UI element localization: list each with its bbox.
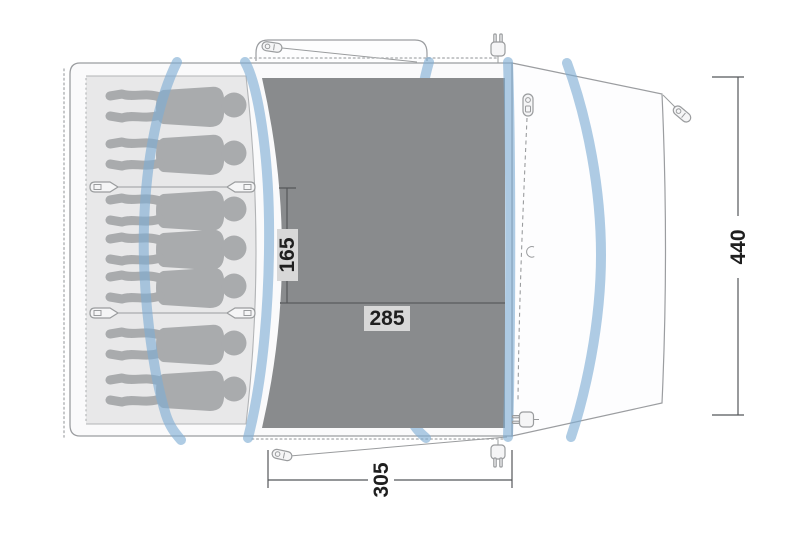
cable-entry-plug-bottom-icon (491, 440, 505, 467)
dimension-440-label: 440 (727, 229, 750, 264)
dimension-165-label: 165 (276, 237, 299, 272)
zipper-pull-icon (523, 94, 533, 116)
tent-floorplan-page: 165 285 305 440 (0, 0, 800, 536)
tent-floorplan-diagram: 165 285 305 440 (0, 0, 800, 536)
tent-peg-icon (671, 104, 692, 124)
front-guy-line (290, 437, 507, 456)
dimension-440: 440 (712, 77, 750, 415)
porch-guy-line (663, 95, 675, 107)
dimension-305: 305 (268, 450, 512, 508)
cable-entry-plug-top-icon (491, 34, 505, 63)
dimension-285-label: 285 (369, 307, 404, 330)
dimension-305-label: 305 (370, 462, 393, 497)
tent-peg-icon (271, 449, 292, 462)
dimension-285: 285 (364, 306, 410, 331)
air-pole-4 (508, 62, 510, 437)
